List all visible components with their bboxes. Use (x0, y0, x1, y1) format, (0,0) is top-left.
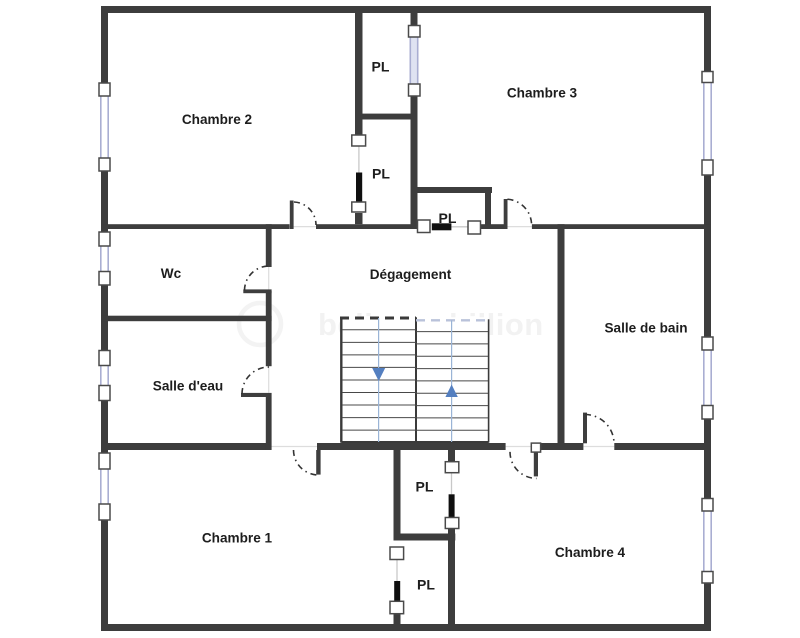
svg-text:PL: PL (416, 479, 434, 495)
svg-text:PL: PL (372, 166, 390, 182)
svg-text:PL: PL (439, 210, 457, 226)
svg-text:Chambre 4: Chambre 4 (555, 545, 626, 560)
svg-text:PL: PL (372, 59, 390, 75)
svg-text:Chambre 2: Chambre 2 (182, 112, 253, 127)
svg-text:Chambre 3: Chambre 3 (507, 86, 578, 101)
svg-text:Dégagement: Dégagement (370, 267, 452, 282)
svg-text:Salle de bain: Salle de bain (604, 321, 687, 336)
svg-text:PL: PL (417, 577, 435, 593)
svg-text:Wc: Wc (161, 266, 182, 281)
svg-text:Chambre 1: Chambre 1 (202, 531, 273, 546)
svg-text:Salle d'eau: Salle d'eau (153, 379, 223, 394)
